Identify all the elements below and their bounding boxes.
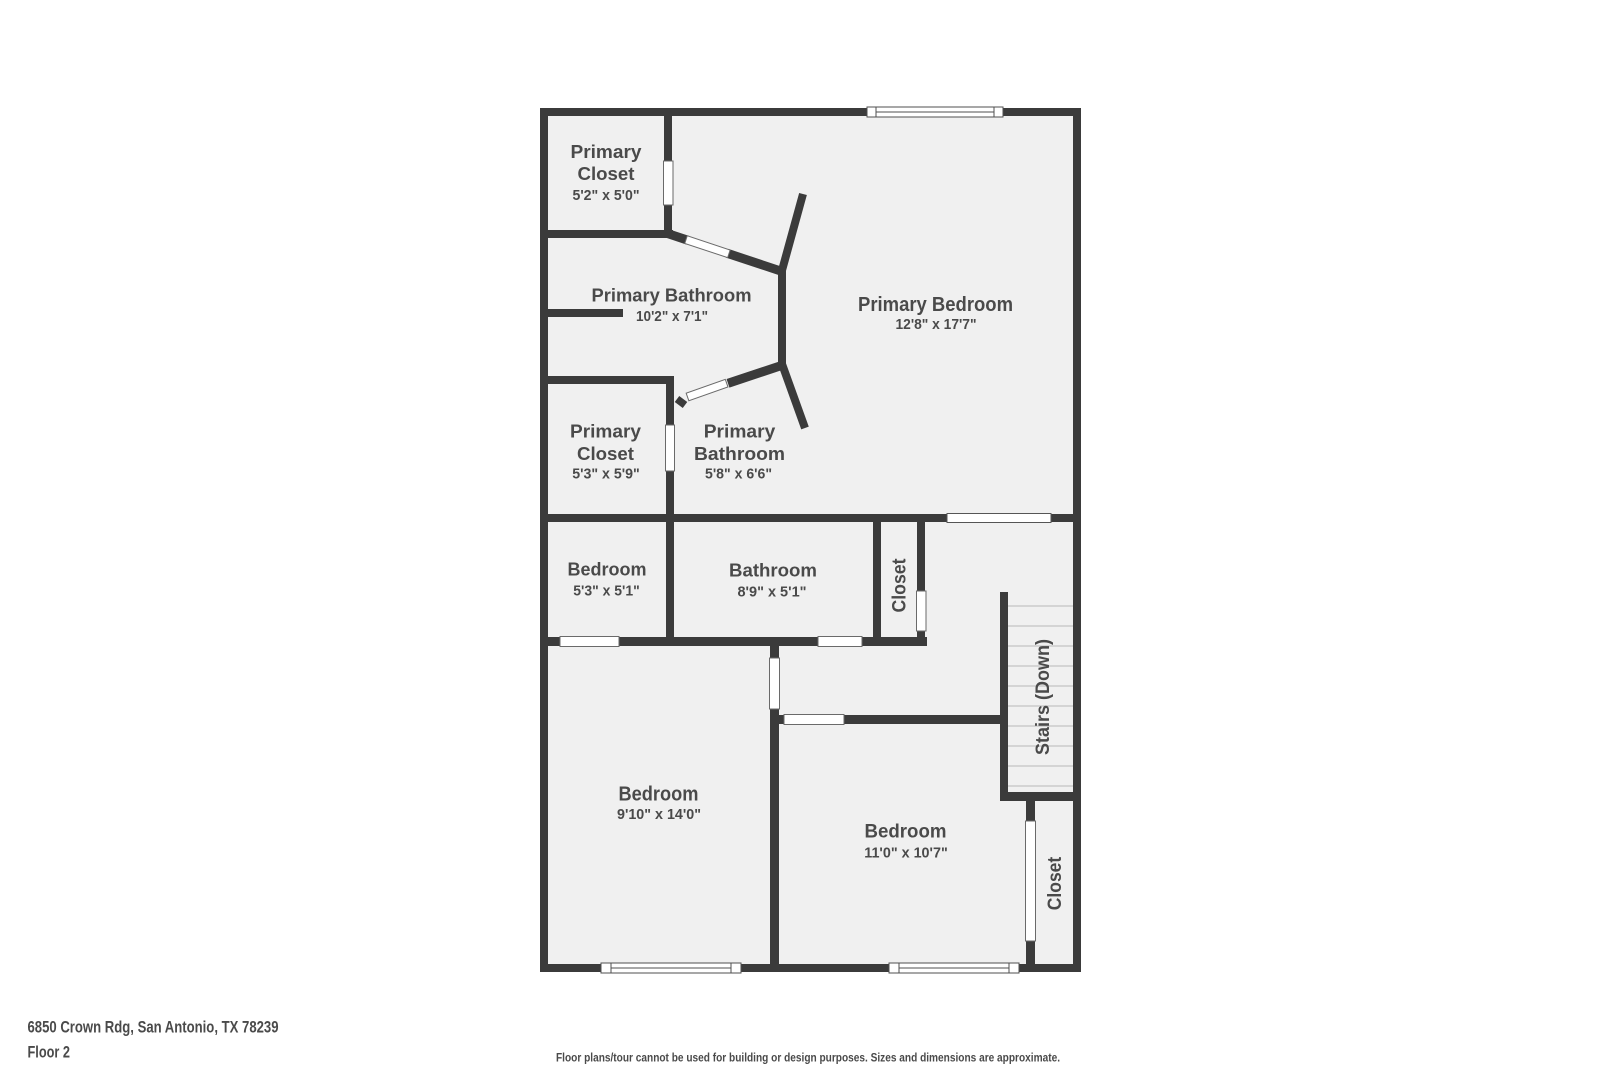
svg-text:Closet: Closet <box>1045 856 1066 910</box>
svg-text:5'3" x 5'1": 5'3" x 5'1" <box>573 583 640 600</box>
svg-text:Bedroom: Bedroom <box>865 821 947 843</box>
svg-text:Primary Bathroom: Primary Bathroom <box>592 286 752 306</box>
svg-text:10'2" x 7'1": 10'2" x 7'1" <box>636 308 708 325</box>
svg-text:8'9" x 5'1": 8'9" x 5'1" <box>738 584 807 601</box>
svg-text:Floor plans/tour cannot be use: Floor plans/tour cannot be used for buil… <box>556 1053 1060 1065</box>
svg-text:Closet: Closet <box>577 444 634 464</box>
svg-text:Bedroom: Bedroom <box>619 783 699 806</box>
svg-text:5'2" x 5'0": 5'2" x 5'0" <box>573 187 640 204</box>
svg-text:12'8" x 17'7": 12'8" x 17'7" <box>896 316 977 333</box>
svg-text:Primary: Primary <box>570 422 641 442</box>
svg-text:5'8" x 6'6": 5'8" x 6'6" <box>705 465 772 482</box>
svg-text:Floor 2: Floor 2 <box>28 1043 71 1062</box>
svg-text:Bedroom: Bedroom <box>568 560 647 580</box>
svg-text:5'3" x 5'9": 5'3" x 5'9" <box>572 465 640 482</box>
svg-text:Stairs (Down): Stairs (Down) <box>1032 639 1054 755</box>
svg-text:Bathroom: Bathroom <box>729 561 817 581</box>
svg-text:6850 Crown Rdg, San Antonio, T: 6850 Crown Rdg, San Antonio, TX 78239 <box>28 1018 279 1037</box>
svg-text:Closet: Closet <box>578 164 635 184</box>
svg-text:Primary Bedroom: Primary Bedroom <box>858 293 1013 316</box>
svg-text:Bathroom: Bathroom <box>694 444 785 464</box>
svg-text:Primary: Primary <box>571 142 642 162</box>
svg-text:11'0" x 10'7": 11'0" x 10'7" <box>864 846 948 862</box>
svg-text:9'10" x 14'0": 9'10" x 14'0" <box>617 806 701 823</box>
svg-text:Closet: Closet <box>890 558 911 613</box>
svg-text:Primary: Primary <box>704 422 776 442</box>
